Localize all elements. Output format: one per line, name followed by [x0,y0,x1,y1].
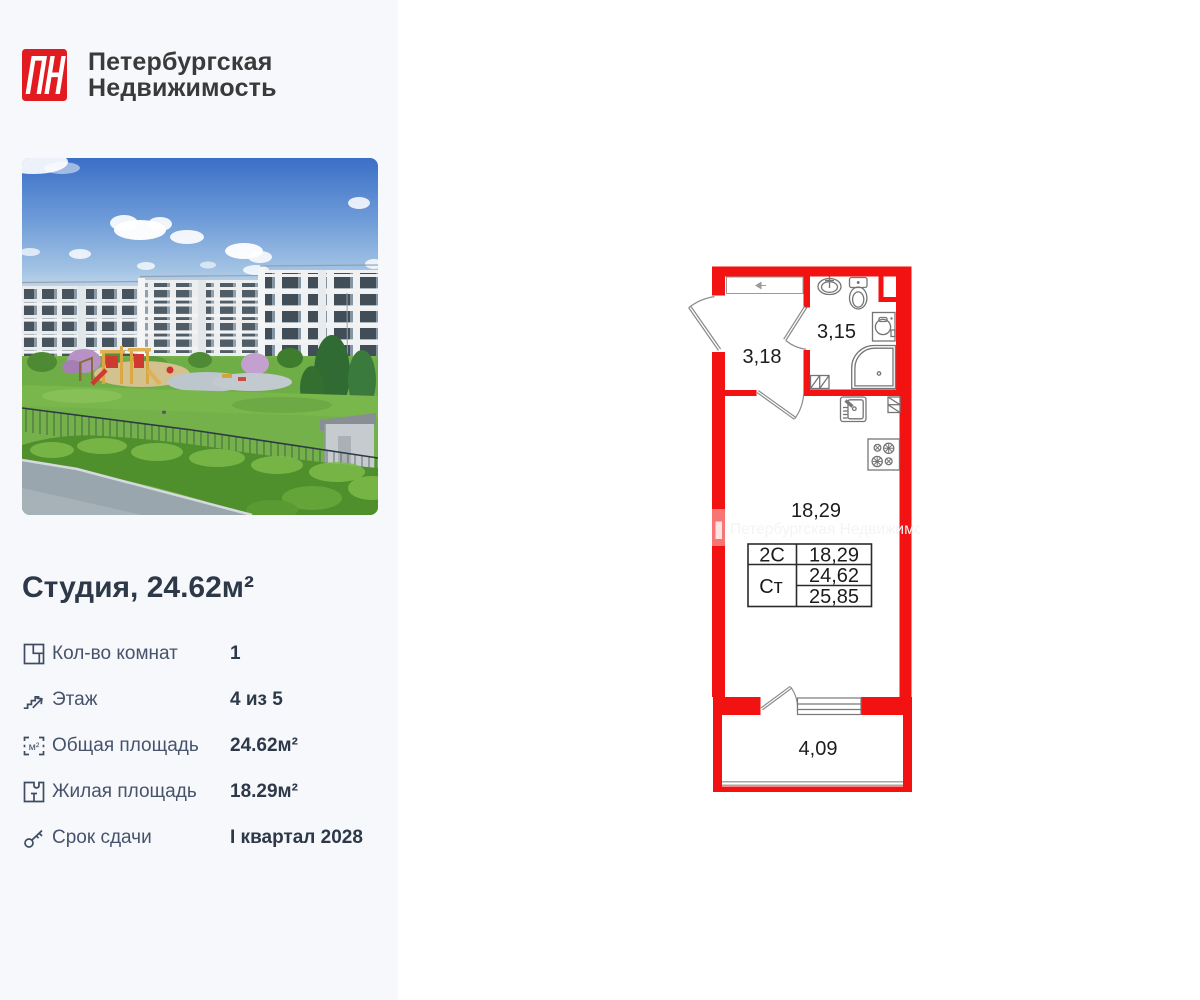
svg-text:18,29: 18,29 [791,500,841,522]
svg-text:3,18: 3,18 [743,346,782,368]
svg-text:24,62: 24,62 [809,565,859,587]
svg-text:3,15: 3,15 [817,321,856,343]
svg-text:18,29: 18,29 [809,545,859,567]
svg-text:м²: м² [29,741,40,753]
svg-text:Ст: Ст [759,576,783,598]
svg-text:4,09: 4,09 [799,738,838,760]
svg-text:25,85: 25,85 [809,586,859,608]
svg-text:2С: 2С [759,545,785,567]
svg-text:Петербургская Недвижимость: Петербургская Недвижимость [730,521,920,538]
